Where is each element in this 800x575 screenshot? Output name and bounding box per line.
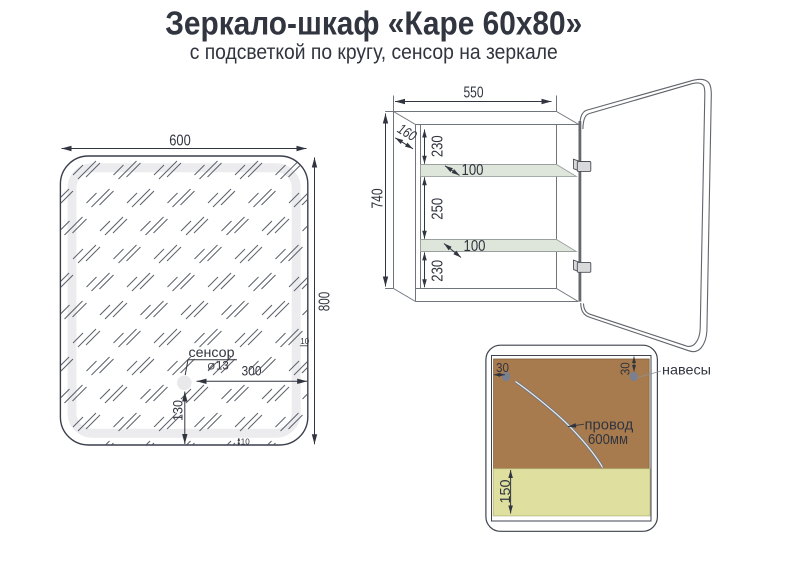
svg-text:250: 250: [430, 198, 447, 220]
svg-text:13: 13: [216, 361, 229, 373]
svg-text:550: 550: [464, 84, 484, 101]
svg-text:230: 230: [430, 135, 447, 157]
svg-text:800: 800: [317, 291, 334, 311]
svg-text:30: 30: [496, 361, 509, 375]
svg-text:130: 130: [170, 400, 186, 421]
svg-text:600: 600: [169, 133, 191, 150]
svg-text:300: 300: [242, 363, 262, 379]
svg-text:30: 30: [618, 362, 632, 375]
svg-text:с подсветкой по кругу, сенсор: с подсветкой по кругу, сенсор на зеркале: [190, 40, 558, 64]
svg-text:10: 10: [300, 337, 309, 346]
svg-text:230: 230: [430, 260, 447, 282]
svg-text:Ø: Ø: [208, 361, 216, 372]
svg-text:150: 150: [498, 480, 514, 504]
svg-text:100: 100: [462, 162, 484, 179]
svg-text:600мм: 600мм: [588, 431, 628, 448]
svg-text:навесы: навесы: [662, 363, 711, 378]
svg-text:100: 100: [464, 238, 486, 255]
svg-text:Зеркало-шкаф «Каре 60х80»: Зеркало-шкаф «Каре 60х80»: [165, 4, 582, 41]
svg-text:740: 740: [370, 188, 387, 208]
svg-text:10: 10: [241, 438, 250, 447]
svg-text:сенсор: сенсор: [189, 344, 235, 360]
